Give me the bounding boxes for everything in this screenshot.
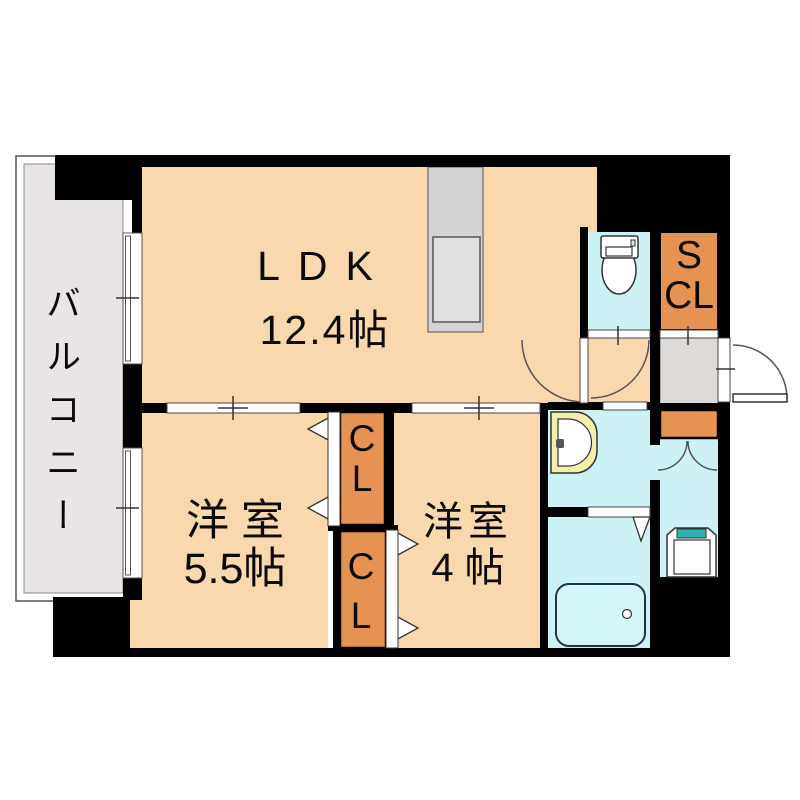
wall-washroom-north-2 — [647, 402, 660, 410]
washer-pan-inner — [674, 540, 710, 574]
laundry-nook-passage — [650, 445, 660, 480]
closet-east-door-strip — [386, 530, 398, 648]
balcony-label: バルコニー — [38, 262, 82, 572]
washing-machine-pan-icon — [667, 528, 716, 577]
wall-ldk-south-1 — [135, 403, 167, 413]
bedroom-east-size-label: 4 帖 — [398, 535, 538, 593]
wall-northeast-block — [597, 155, 730, 232]
bathtub-icon — [556, 584, 645, 646]
closet-east-label: C L — [337, 542, 385, 640]
wall-hall-entrance-divider — [650, 331, 660, 408]
storage-closet-label: S CL — [662, 236, 716, 316]
window-glass-line — [126, 451, 131, 575]
washer-faucet-bar — [677, 529, 706, 538]
cl-west-line2: L — [352, 459, 373, 499]
entrance-closet — [660, 410, 718, 438]
closet-west-label: C L — [338, 419, 386, 499]
ldk-door-leaf — [580, 338, 588, 403]
kitchen-sink-icon — [433, 237, 480, 322]
floor-plan-canvas: バルコニー LDK 12.4帖 洋 室 5.5帖 洋室 4 帖 S CL C L… — [0, 0, 800, 800]
entrance-opening — [718, 338, 730, 402]
scl-door-opening — [660, 330, 718, 338]
bedroom-west-size-label: 5.5帖 — [135, 534, 335, 596]
wall-bathroom-north — [548, 507, 588, 517]
scl-line1: S — [676, 236, 702, 276]
bathroom-door-opening — [588, 507, 650, 517]
toilet-button — [631, 240, 635, 246]
toilet-lid — [606, 247, 632, 256]
floor-plan-drawing — [0, 0, 800, 800]
cl-east-line2: L — [351, 591, 372, 640]
door-swing-icon — [733, 345, 787, 399]
wall-bedroom-east — [540, 403, 548, 648]
wall-west-1 — [132, 167, 142, 233]
ldk-label: LDK — [224, 243, 424, 290]
toilet-door-opening — [588, 330, 650, 338]
wall-nook-upper — [650, 410, 660, 445]
wall-closet-west-east-side — [385, 412, 394, 526]
cl-east-line1: C — [348, 542, 375, 591]
entrance-door-leaf — [733, 394, 787, 402]
washroom-door-opening — [603, 402, 647, 410]
wall-nook-lower — [650, 480, 660, 577]
wall-balcony-top — [55, 155, 132, 200]
wall-washroom-north-1 — [548, 402, 603, 410]
cl-west-line1: C — [349, 419, 376, 459]
wall-south — [53, 648, 730, 657]
ldk-size-label: 12.4帖 — [215, 296, 435, 356]
wall-entrance-south — [650, 403, 718, 410]
wall-southwest-block — [53, 597, 130, 657]
faucet-icon — [556, 439, 564, 448]
toilet-icon — [601, 236, 638, 294]
wall-toilet-scl-divider — [650, 232, 660, 331]
bathtub-drain — [623, 610, 632, 619]
entrance-genkan — [660, 338, 718, 404]
wall-southeast-block — [650, 577, 730, 657]
scl-line2: CL — [664, 276, 714, 316]
wall-ldk-south-2 — [300, 403, 412, 413]
washbasin-icon — [551, 412, 597, 473]
wall-toilet-west — [580, 227, 588, 338]
